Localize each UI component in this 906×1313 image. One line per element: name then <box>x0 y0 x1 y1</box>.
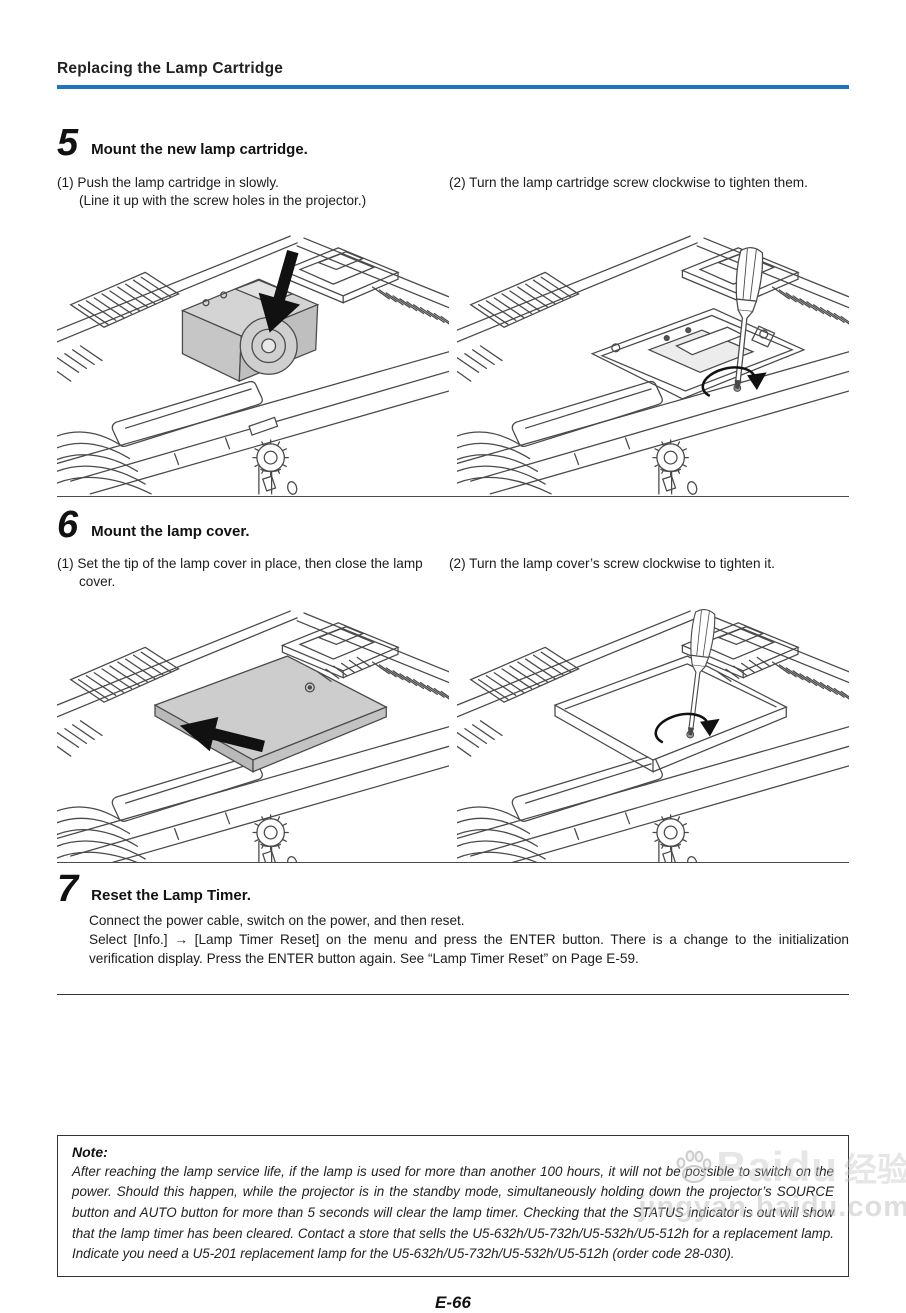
step-7-number: 7 <box>57 873 76 905</box>
step-5-item-1: (1) Push the lamp cartridge in slowly. (… <box>57 174 442 210</box>
step-6-item-1: (1) Set the tip of the lamp cover in pla… <box>57 555 442 591</box>
step-6-number: 6 <box>57 509 76 541</box>
note-text: After reaching the lamp service life, if… <box>72 1162 834 1265</box>
watermark-logo-cn: 经验 <box>844 1143 906 1191</box>
item-text: Turn the lamp cover’s screw clockwise to… <box>469 556 775 571</box>
note-label: Note: <box>72 1144 834 1160</box>
push-lamp-cartridge-illustration <box>57 232 449 496</box>
step-5-title: Mount the new lamp cartridge. <box>91 141 308 158</box>
item-text: Push the lamp cartridge in slowly. <box>77 175 278 190</box>
page-header: Replacing the Lamp Cartridge <box>57 60 849 89</box>
step-5-section: 5 Mount the new lamp cartridge. (1) Push… <box>57 127 849 497</box>
step-6-item-2: (2) Turn the lamp cover’s screw clockwis… <box>449 555 849 573</box>
tighten-cover-screw-illustration <box>457 609 849 862</box>
note-box: Note: After reaching the lamp service li… <box>57 1135 849 1277</box>
page-title: Replacing the Lamp Cartridge <box>57 60 849 78</box>
step-7-line-2: Select [Info.] → [Lamp Timer Reset] on t… <box>89 930 849 968</box>
step-5-item-2: (2) Turn the lamp cartridge screw clockw… <box>449 174 849 192</box>
close-lamp-cover-illustration <box>57 609 449 862</box>
page-number: E-66 <box>57 1293 849 1313</box>
step-7-section: 7 Reset the Lamp Timer. Connect the powe… <box>57 873 849 994</box>
step-6-figures <box>57 609 849 863</box>
step-7-title: Reset the Lamp Timer. <box>91 887 251 904</box>
step-5-figures <box>57 232 849 497</box>
step-7-body: Connect the power cable, switch on the p… <box>89 911 849 968</box>
section-divider <box>57 994 849 995</box>
item-label: (1) <box>57 175 74 190</box>
step-5-number: 5 <box>57 127 76 159</box>
step-6-section: 6 Mount the lamp cover. (1) Set the tip … <box>57 509 849 863</box>
item-label: (2) <box>449 175 466 190</box>
header-accent-rule <box>57 85 849 89</box>
tighten-cartridge-screw-illustration <box>457 232 849 496</box>
item-text: Set the tip of the lamp cover in place, … <box>77 556 422 589</box>
item-subtext: (Line it up with the screw holes in the … <box>79 192 442 210</box>
step-7-line-1: Connect the power cable, switch on the p… <box>89 911 849 930</box>
item-label: (2) <box>449 556 466 571</box>
manual-page: Replacing the Lamp Cartridge 5 Mount the… <box>57 0 849 1313</box>
item-label: (1) <box>57 556 74 571</box>
step-6-title: Mount the lamp cover. <box>91 523 249 540</box>
item-text: Turn the lamp cartridge screw clockwise … <box>469 175 808 190</box>
